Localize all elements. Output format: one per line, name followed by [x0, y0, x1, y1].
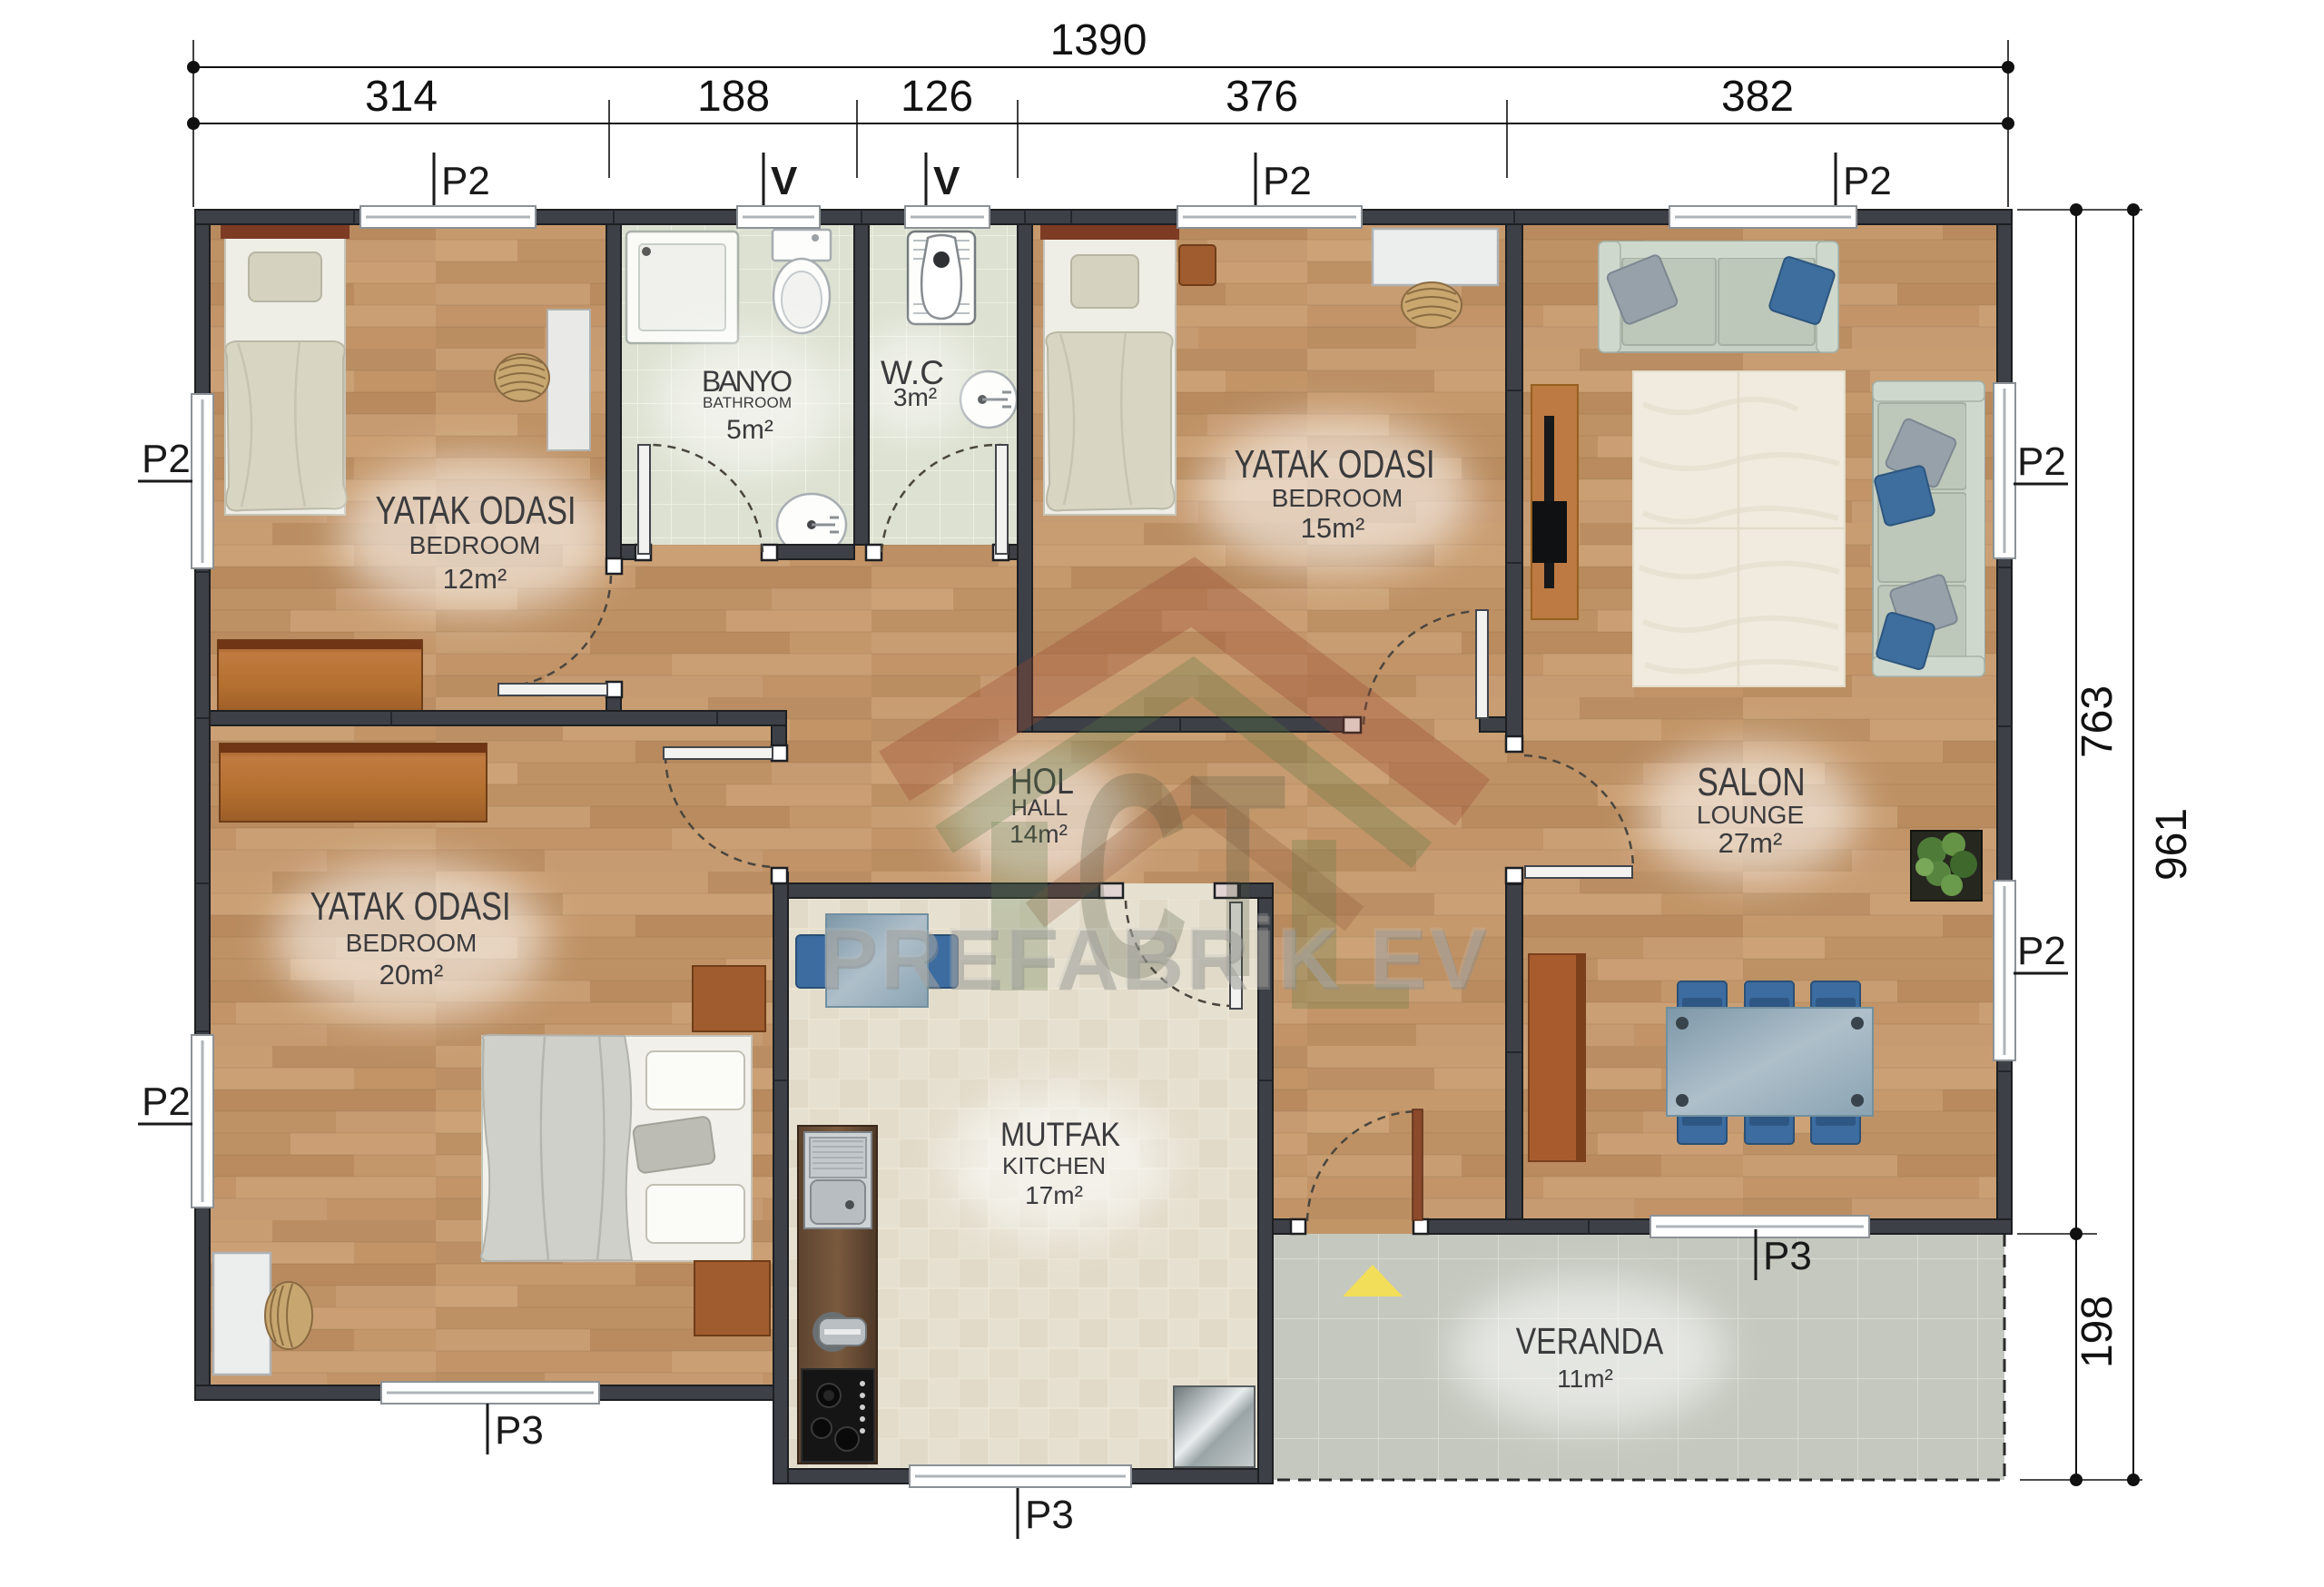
svg-text:P3: P3 — [1763, 1234, 1812, 1278]
svg-text:3m²: 3m² — [893, 383, 937, 411]
svg-text:V: V — [933, 159, 960, 203]
svg-text:YATAK ODASI: YATAK ODASI — [310, 884, 510, 929]
svg-text:BANYO: BANYO — [702, 365, 793, 398]
svg-text:BEDROOM: BEDROOM — [409, 531, 541, 559]
svg-text:P2: P2 — [142, 437, 191, 481]
svg-text:P2: P2 — [1263, 159, 1312, 203]
svg-text:P2: P2 — [1843, 159, 1892, 203]
svg-text:1390: 1390 — [1050, 16, 1147, 64]
svg-text:LOUNGE: LOUNGE — [1697, 801, 1804, 829]
svg-text:126: 126 — [901, 73, 973, 121]
svg-text:20m²: 20m² — [379, 959, 444, 991]
svg-text:P2: P2 — [2017, 439, 2066, 484]
svg-text:382: 382 — [1721, 73, 1794, 121]
svg-text:V: V — [771, 159, 798, 203]
svg-text:VERANDA: VERANDA — [1516, 1320, 1664, 1362]
svg-text:YATAK ODASI: YATAK ODASI — [1234, 442, 1434, 487]
svg-text:BEDROOM: BEDROOM — [346, 929, 478, 957]
svg-text:188: 188 — [697, 73, 770, 121]
svg-text:11m²: 11m² — [1557, 1365, 1613, 1393]
svg-text:PREFABRİK EV: PREFABRİK EV — [819, 910, 1489, 1006]
svg-text:P3: P3 — [1025, 1493, 1074, 1537]
svg-text:5m²: 5m² — [726, 415, 773, 445]
svg-text:15m²: 15m² — [1301, 512, 1365, 544]
svg-text:314: 314 — [365, 73, 438, 121]
svg-text:BEDROOM: BEDROOM — [1272, 484, 1403, 512]
svg-text:YATAK ODASI: YATAK ODASI — [375, 488, 576, 533]
svg-text:376: 376 — [1226, 73, 1298, 121]
svg-text:SALON: SALON — [1697, 760, 1805, 804]
svg-text:12m²: 12m² — [443, 563, 507, 595]
svg-text:17m²: 17m² — [1025, 1181, 1083, 1209]
svg-text:MUTFAK: MUTFAK — [1000, 1116, 1120, 1153]
svg-text:763: 763 — [2073, 685, 2122, 758]
svg-text:27m²: 27m² — [1718, 827, 1783, 859]
svg-text:KITCHEN: KITCHEN — [1002, 1152, 1106, 1179]
svg-text:961: 961 — [2148, 808, 2196, 881]
svg-text:BATHROOM: BATHROOM — [703, 394, 792, 411]
svg-text:P3: P3 — [495, 1408, 544, 1453]
svg-text:P2: P2 — [142, 1079, 191, 1124]
svg-text:198: 198 — [2073, 1296, 2122, 1368]
svg-text:P2: P2 — [441, 159, 490, 203]
svg-text:P2: P2 — [2017, 929, 2066, 973]
